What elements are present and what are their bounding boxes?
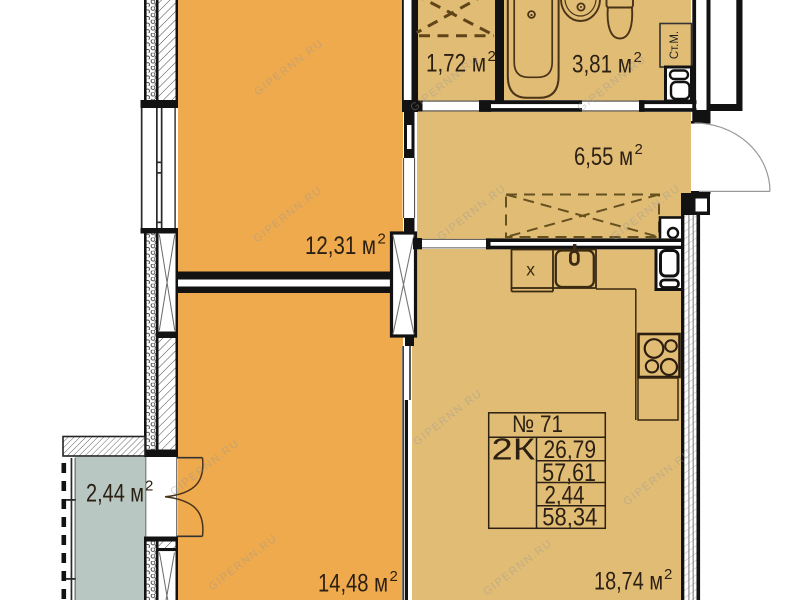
svg-text:14,48 м: 14,48 м (318, 570, 388, 598)
svg-text:2,44 м: 2,44 м (86, 480, 144, 508)
svg-text:x: x (526, 260, 535, 280)
svg-text:2: 2 (145, 478, 153, 495)
svg-text:2: 2 (378, 231, 386, 248)
svg-text:2: 2 (390, 568, 398, 585)
svg-text:2: 2 (664, 566, 672, 583)
svg-text:58,34: 58,34 (542, 504, 597, 532)
svg-text:2: 2 (635, 141, 643, 158)
svg-text:2: 2 (488, 48, 496, 65)
svg-text:6,55 м: 6,55 м (574, 143, 633, 171)
svg-text:18,74 м: 18,74 м (594, 568, 663, 596)
svg-text:Ст.М.: Ст.М. (669, 31, 681, 59)
svg-text:2К: 2К (492, 432, 536, 467)
svg-text:12,31 м: 12,31 м (305, 232, 376, 260)
